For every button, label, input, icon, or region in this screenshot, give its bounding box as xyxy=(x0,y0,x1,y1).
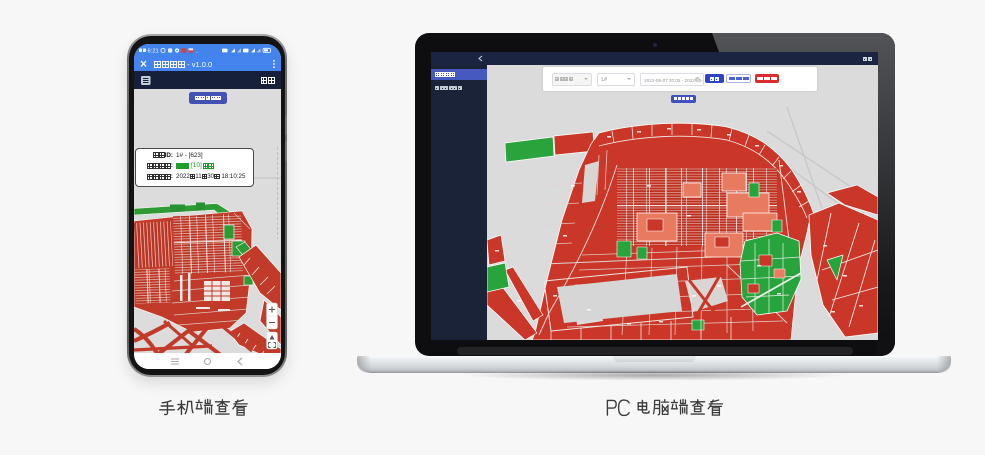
svg-text:..: .. xyxy=(196,48,199,54)
svg-text:6:21: 6:21 xyxy=(147,49,158,55)
